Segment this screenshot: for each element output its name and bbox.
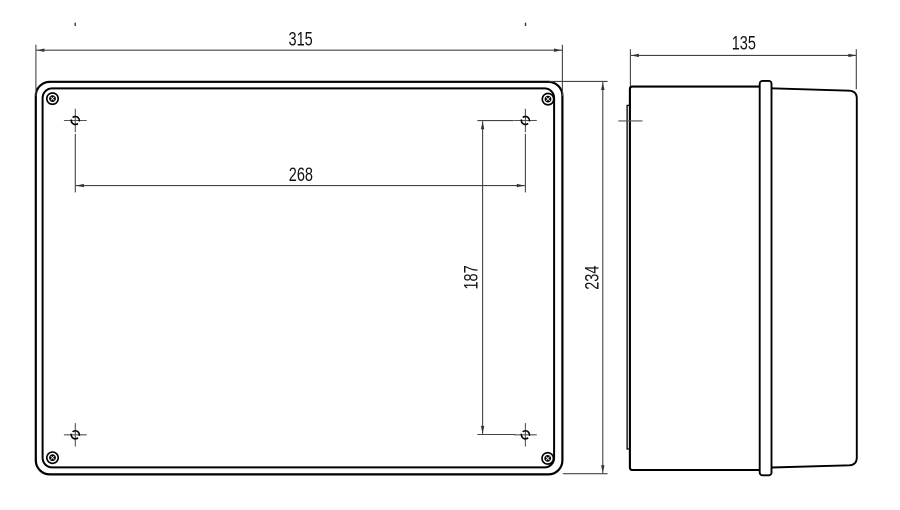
svg-text:187: 187 (462, 265, 483, 289)
svg-text:135: 135 (732, 34, 756, 55)
svg-text:234: 234 (582, 265, 603, 290)
svg-text:268: 268 (289, 165, 313, 186)
svg-text:315: 315 (289, 30, 313, 51)
